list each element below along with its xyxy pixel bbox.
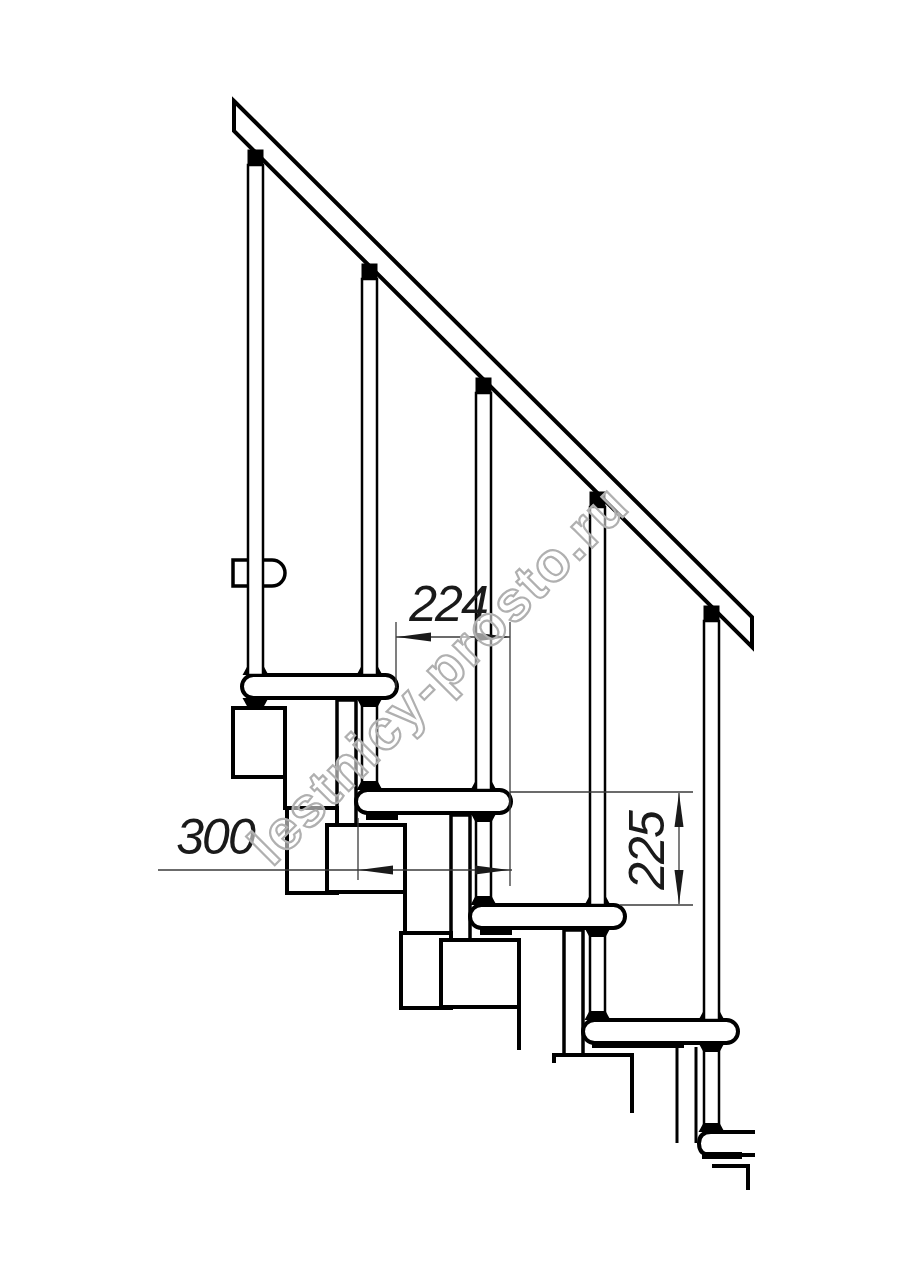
tread-5-partial: [699, 1132, 755, 1155]
tread-5-underside-strip: [702, 1152, 742, 1159]
staircase-svg: 224300225lestnicy-prosto.ru: [0, 0, 914, 1280]
handrail-bracket-1: [248, 150, 264, 165]
support-post-under-tread-2: [476, 813, 491, 905]
baluster-4: [590, 507, 605, 905]
tread-3: [470, 905, 625, 928]
baluster-1: [248, 165, 263, 675]
arrow-rise-down: [675, 870, 684, 904]
baluster-5: [704, 621, 719, 1020]
arrow-rise-up: [675, 793, 684, 827]
staircase-drawing-page: 224300225lestnicy-prosto.ru: [0, 0, 914, 1280]
module-box-b2: [327, 825, 405, 892]
module-box-b3: [441, 940, 519, 1007]
tread-4: [583, 1020, 738, 1043]
flange-bottom-tread4: [699, 1043, 725, 1052]
flange-top-tread5: [699, 1123, 725, 1132]
module-box-b4-partial: [554, 1055, 632, 1113]
module-neck-3: [451, 815, 470, 940]
flange-bottom-tread3: [585, 928, 611, 937]
handrail-bracket-3: [476, 378, 492, 393]
module-neck-4: [564, 930, 583, 1055]
support-post-under-tread-3: [590, 928, 605, 1020]
tread-2: [356, 790, 511, 813]
tread-4-underside-strip: [592, 1041, 684, 1048]
handrail-bracket-5: [704, 606, 720, 621]
baluster-2: [362, 279, 377, 675]
handrail-bracket-2: [362, 264, 378, 279]
flange-top-tread3-left: [471, 896, 497, 905]
tread-2-underside-strip: [366, 813, 398, 820]
flange-top-tread4-left: [585, 1011, 611, 1020]
flange-bottom-tread2: [471, 813, 497, 822]
dim-label-rise: 225: [619, 810, 675, 891]
module-box-a1: [233, 708, 285, 777]
handrail: [234, 101, 752, 647]
flange-bottom-tread1-left: [243, 698, 269, 707]
arrow-run-left: [397, 633, 431, 642]
support-post-under-tread-4: [704, 1043, 719, 1132]
tread-3-underside-strip: [480, 928, 512, 935]
module-box-b5-partial: [712, 1164, 750, 1190]
